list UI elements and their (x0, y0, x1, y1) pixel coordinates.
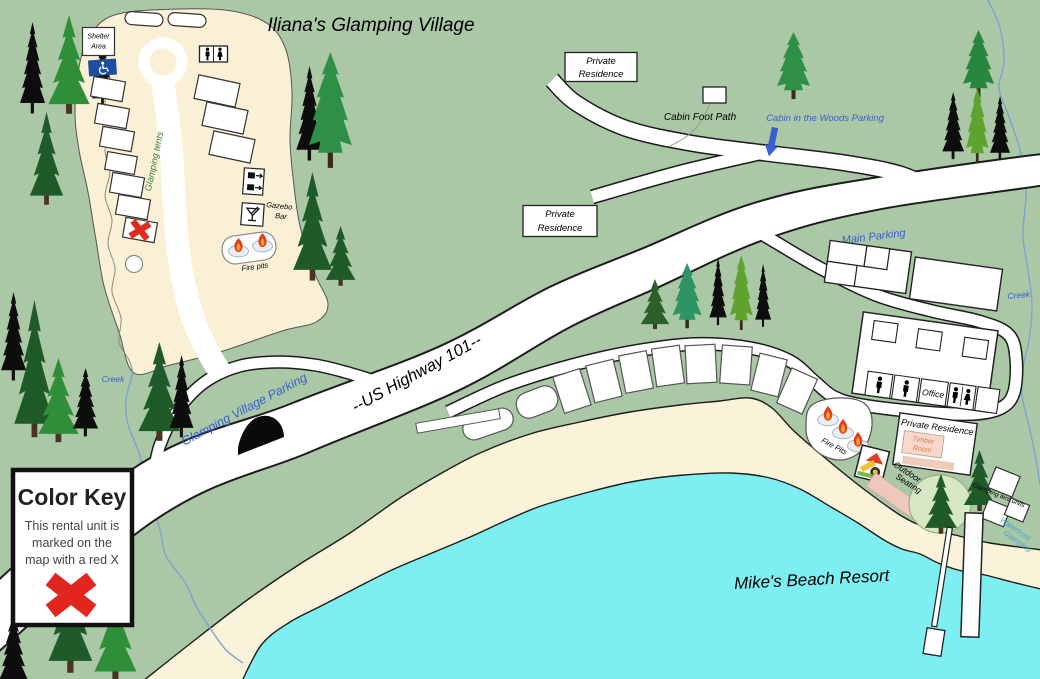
svg-text:Creek: Creek (1007, 289, 1031, 301)
svg-text:Color Key: Color Key (18, 484, 127, 510)
svg-text:Private: Private (545, 209, 575, 220)
svg-text:Residence: Residence (538, 223, 583, 234)
svg-text:Private: Private (586, 56, 616, 67)
svg-text:Cabin in the Woods Parking: Cabin in the Woods Parking (766, 113, 884, 124)
svg-text:Creek: Creek (102, 374, 125, 384)
svg-text:Cabin Foot Path: Cabin Foot Path (664, 112, 737, 123)
svg-text:Bar: Bar (275, 211, 288, 221)
svg-text:marked on the: marked on the (32, 536, 112, 550)
svg-text:map with a red X: map with a red X (25, 553, 119, 567)
svg-text:Shelter: Shelter (87, 34, 110, 41)
svg-text:Residence: Residence (579, 69, 624, 80)
svg-text:Area: Area (90, 44, 106, 51)
svg-text:This rental unit is: This rental unit is (25, 519, 119, 533)
svg-text:Iliana's Glamping Village: Iliana's Glamping Village (267, 15, 474, 36)
